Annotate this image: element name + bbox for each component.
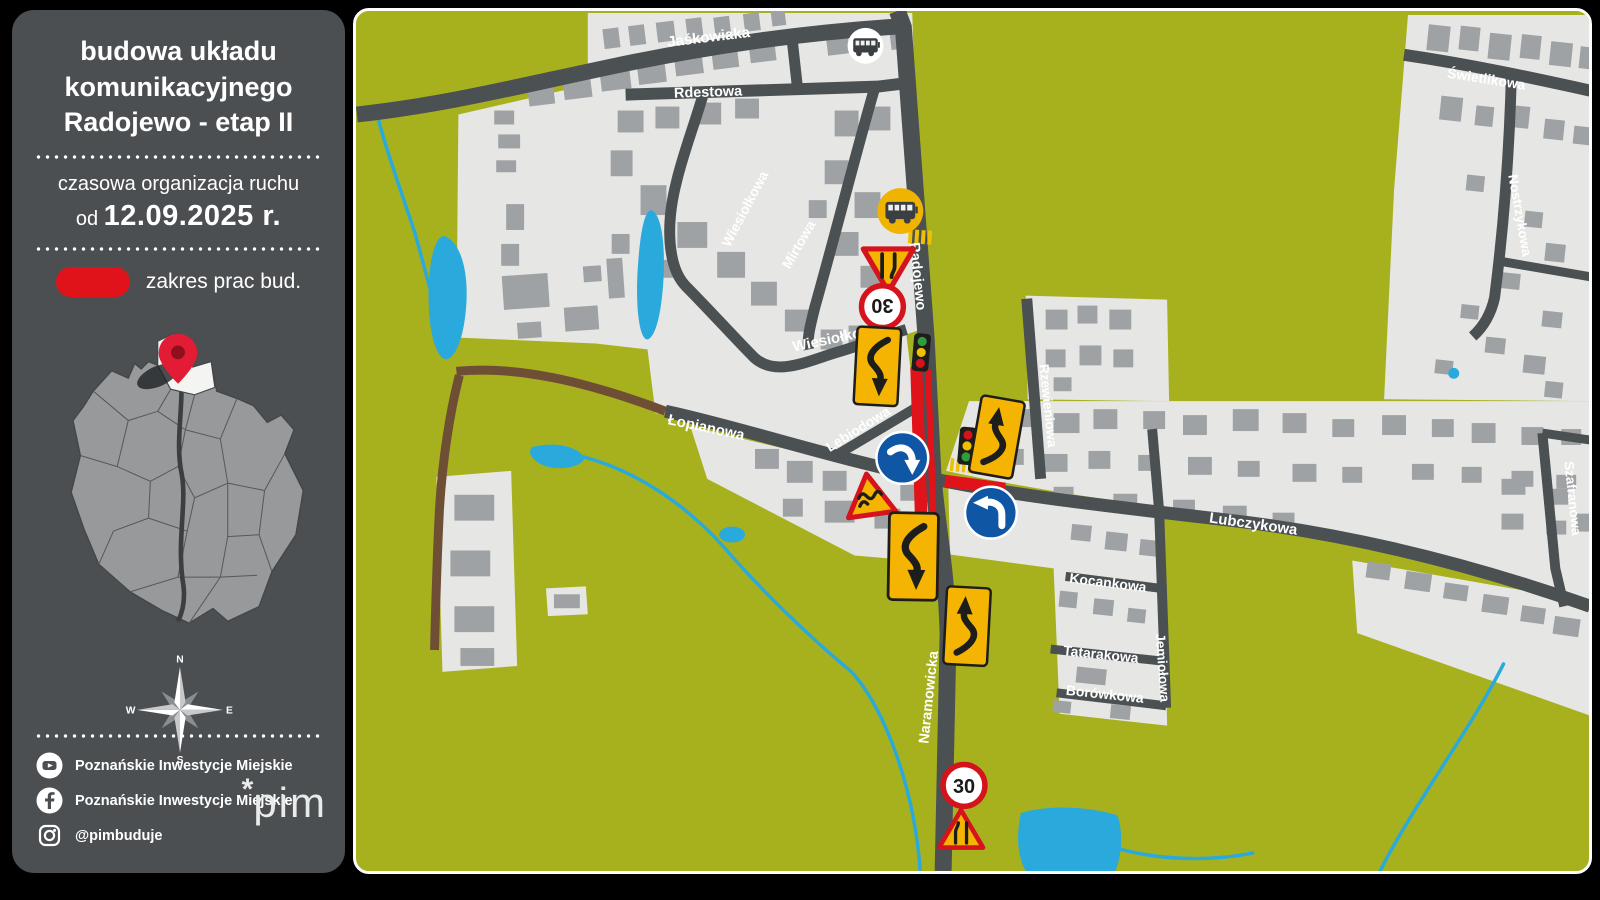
effective-date: 12.09.2025 r. xyxy=(104,200,281,232)
traffic-signal-north-icon xyxy=(911,333,931,372)
poster-frame: budowa układu komunikacyjnego Radojewo -… xyxy=(0,0,1600,900)
lane-shift-board-south xyxy=(888,513,939,601)
speed-limit-sign-north xyxy=(862,286,904,328)
dotted-divider xyxy=(34,247,323,251)
youtube-icon xyxy=(36,752,63,779)
traffic-map: 30 xyxy=(353,8,1592,874)
info-sidebar: budowa układu komunikacyjnego Radojewo -… xyxy=(12,10,345,873)
speed-limit-sign-south xyxy=(943,764,985,806)
construction-zone-swatch xyxy=(56,267,130,297)
street-label-rdestowa: Rdestowa xyxy=(674,83,744,101)
dotted-divider xyxy=(34,734,323,738)
pond-south xyxy=(1018,808,1121,871)
compass-e: E xyxy=(226,706,233,717)
date-prefix: od xyxy=(76,208,98,230)
poster-subtitle: czasowa organizacja ruchu xyxy=(12,173,345,196)
lane-shift-board-north xyxy=(854,326,902,406)
poznan-districts-map xyxy=(28,310,328,660)
pond-dot xyxy=(1448,368,1459,379)
pim-logo: *pim xyxy=(242,773,327,827)
effective-date-row: od 12.09.2025 r. xyxy=(12,200,345,233)
social-links: Poznańskie Inwestycje Miejskie Poznański… xyxy=(12,720,345,873)
instagram-label: @pimbuduje xyxy=(75,828,162,844)
bus-stop-radojewo xyxy=(877,188,923,234)
compass-w: W xyxy=(126,706,136,717)
pim-logo-text: pim xyxy=(253,779,327,826)
mandatory-left-turn-sign xyxy=(965,487,1017,539)
poster-title: budowa układu komunikacyjnego Radojewo -… xyxy=(12,34,345,141)
mandatory-right-turn-sign xyxy=(876,432,928,484)
pond-tiny xyxy=(719,527,745,543)
legend-label: zakres prac bud. xyxy=(146,270,301,294)
compass-n: N xyxy=(176,654,183,665)
youtube-label: Poznańskie Inwestycje Miejskie xyxy=(75,758,293,774)
legend-row: zakres prac bud. xyxy=(12,267,345,297)
facebook-icon xyxy=(36,787,63,814)
bus-stop-north xyxy=(848,28,884,64)
instagram-icon xyxy=(36,822,63,849)
lane-shift-board-naramowicka xyxy=(943,586,991,666)
pim-logo-star: * xyxy=(242,773,254,806)
map-canvas: 30 xyxy=(356,11,1589,871)
dotted-divider xyxy=(34,155,323,159)
